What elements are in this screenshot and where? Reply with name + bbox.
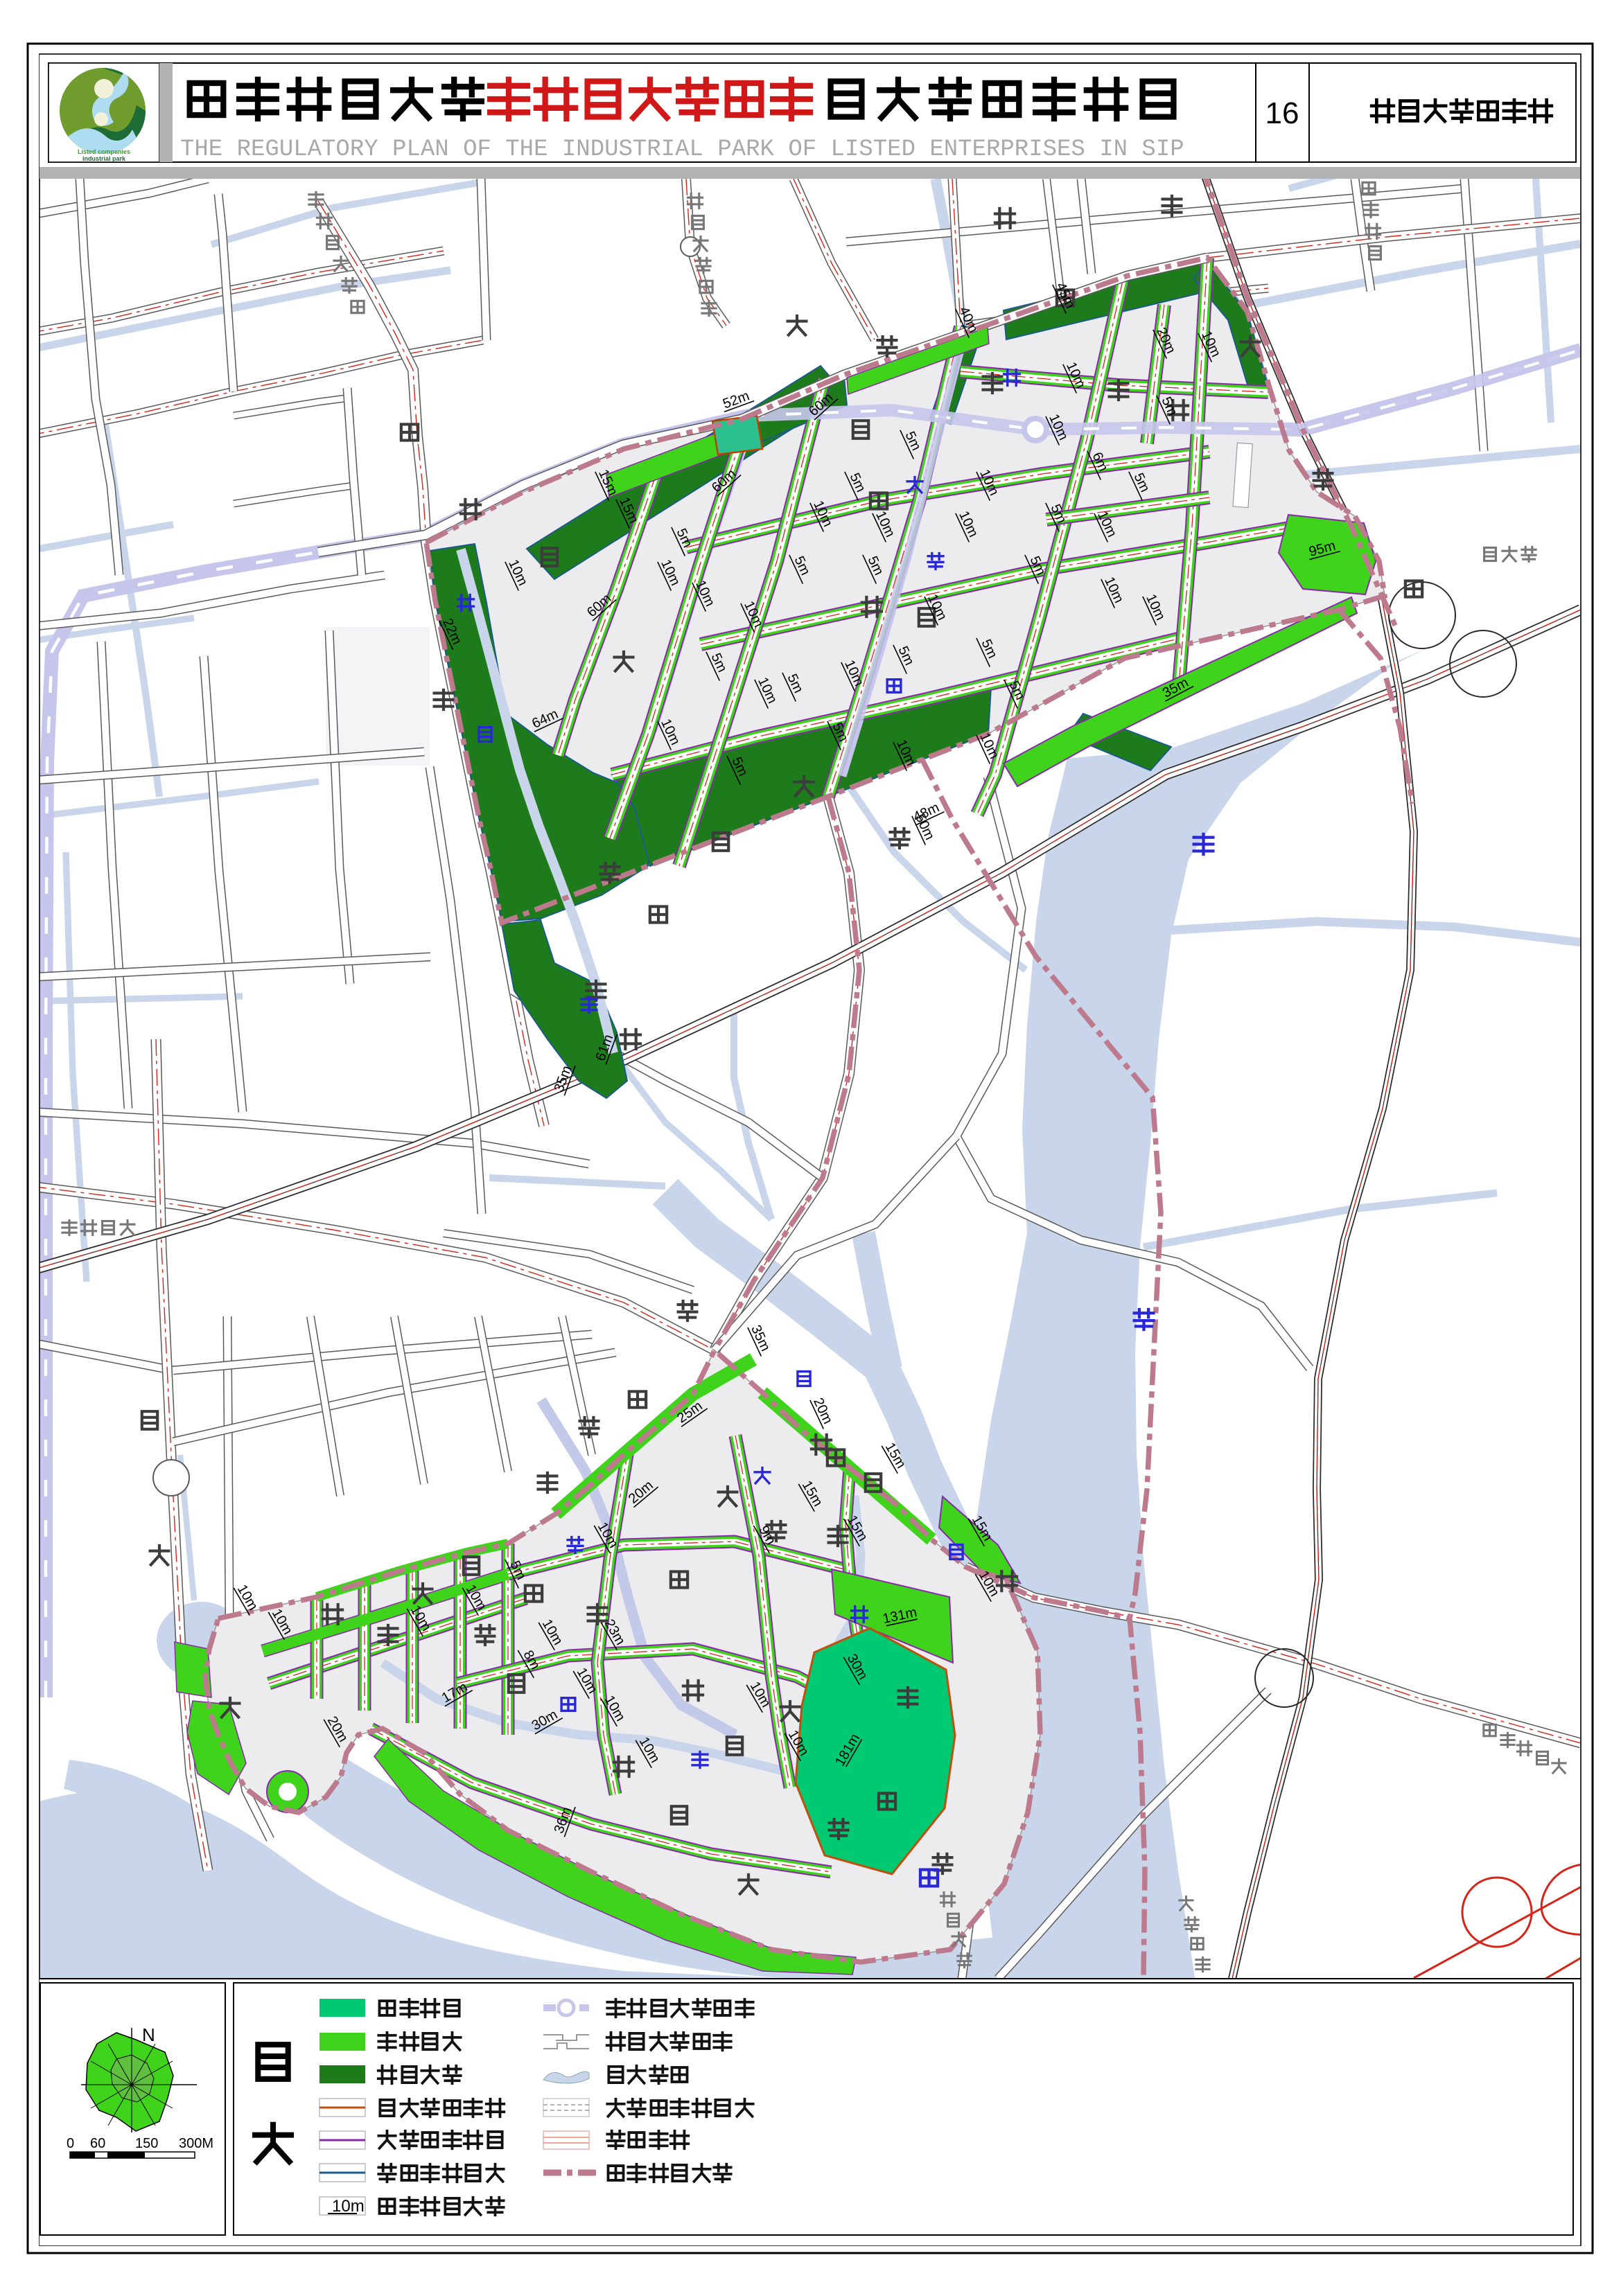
svg-text:industrial park: industrial park: [82, 155, 126, 162]
svg-text:0: 0: [67, 2136, 74, 2151]
svg-text:300M: 300M: [179, 2136, 213, 2151]
svg-text:N: N: [142, 2024, 155, 2045]
svg-text:150: 150: [135, 2136, 158, 2151]
svg-text:Listed companies: Listed companies: [78, 148, 130, 155]
svg-text:16: 16: [1265, 96, 1299, 130]
svg-text:10m: 10m: [332, 2197, 365, 2216]
svg-text:THE REGULATORY PLAN OF THE IND: THE REGULATORY PLAN OF THE INDUSTRIAL PA…: [180, 136, 1184, 163]
svg-text:60: 60: [90, 2136, 105, 2151]
